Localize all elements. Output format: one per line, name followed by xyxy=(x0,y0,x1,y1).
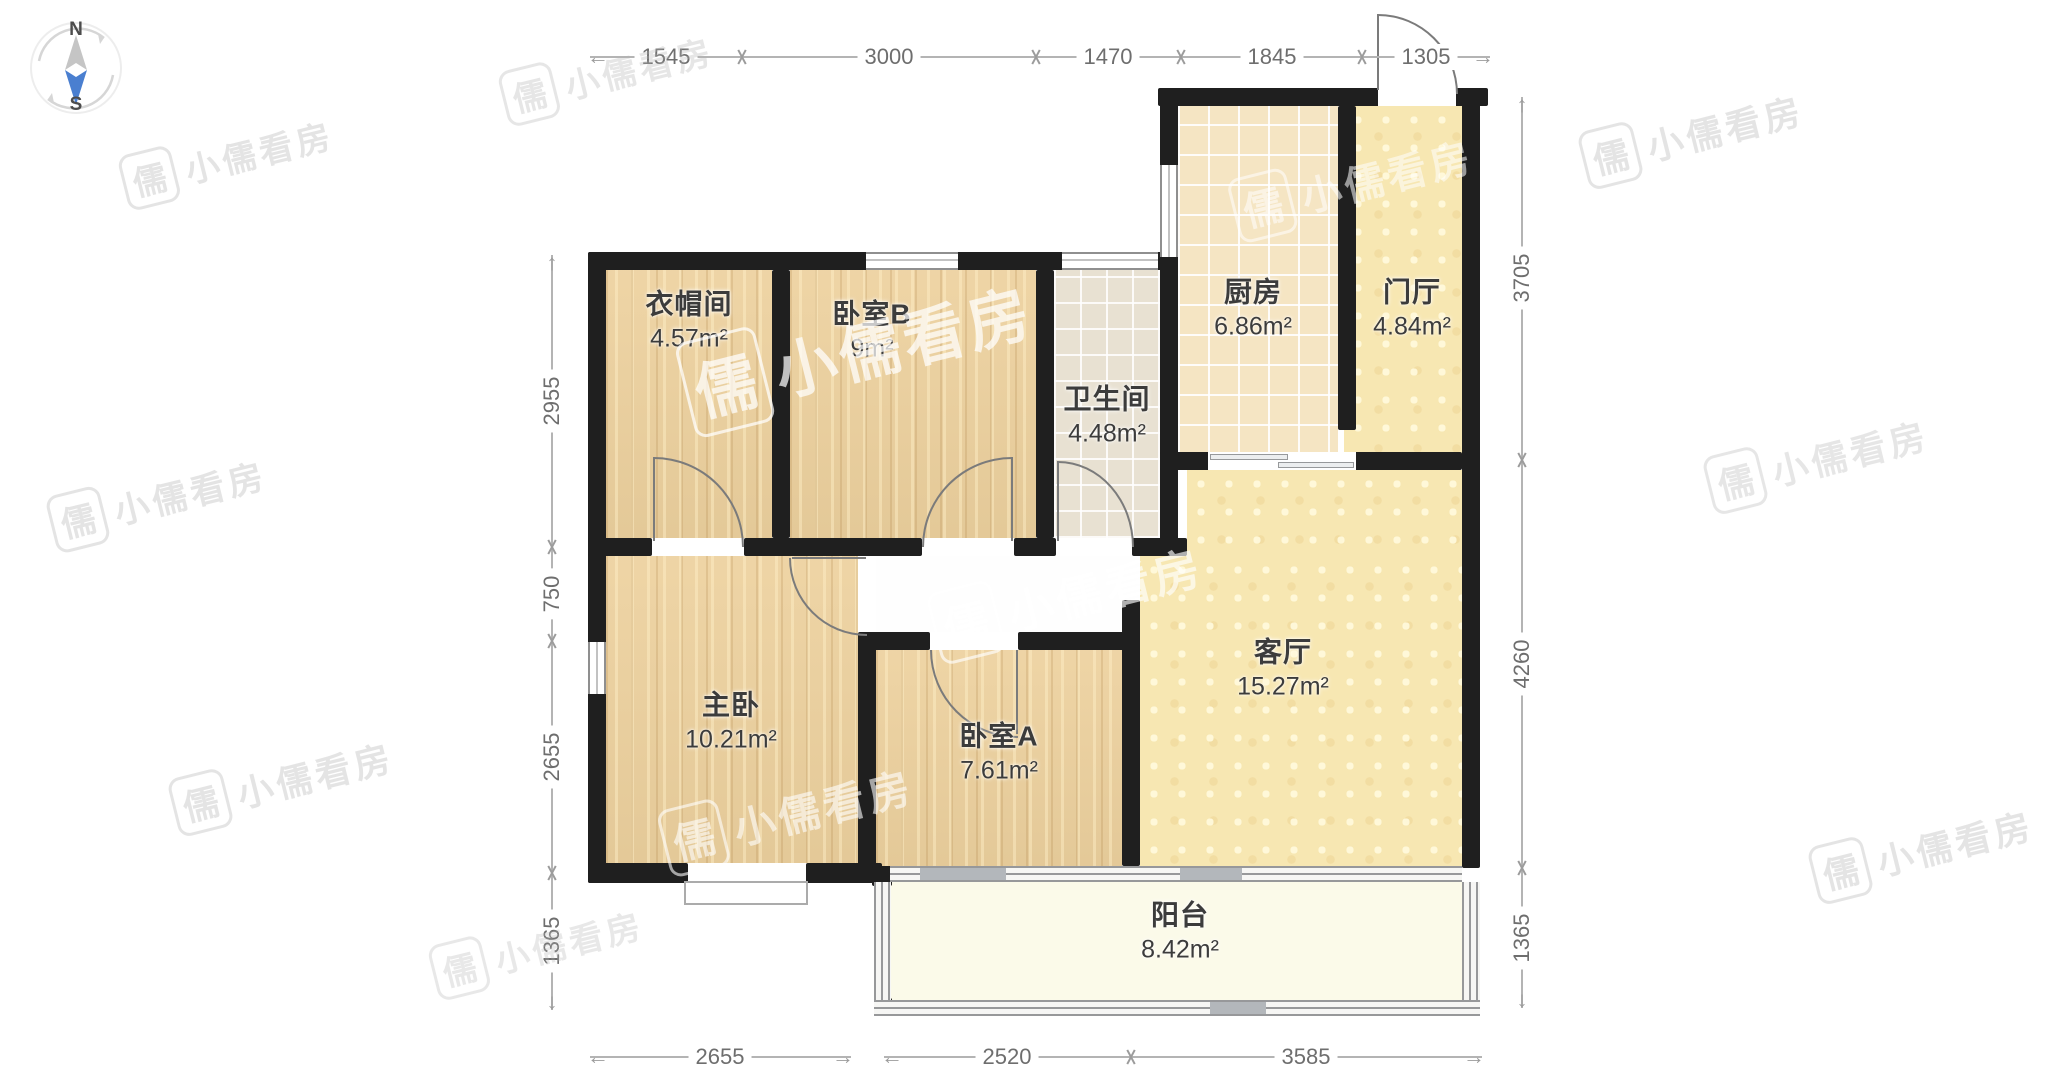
room-name: 衣帽间 xyxy=(645,283,732,323)
wall-master-bedrooma xyxy=(858,640,876,883)
room-area: 4.84m² xyxy=(1373,313,1451,342)
watermark-logo-icon: 儒 xyxy=(166,767,235,839)
dim-tick xyxy=(1352,47,1372,67)
compass: N S xyxy=(28,18,124,114)
master-door-leaf xyxy=(792,557,866,559)
room-label-bedroom-a: 卧室A 7.61m² xyxy=(959,715,1038,786)
watermark: 儒 小儒看房 xyxy=(116,105,339,213)
dim-label: 2655 xyxy=(539,726,565,789)
dim-tick xyxy=(1512,450,1532,470)
wall-kitchen-entry xyxy=(1338,106,1356,430)
dim-tick xyxy=(1026,47,1046,67)
watermark-logo-icon: 儒 xyxy=(1576,120,1645,192)
room-name: 卧室A xyxy=(959,715,1038,755)
balcony-window-left xyxy=(874,882,891,1000)
dim-label: 750 xyxy=(539,569,565,620)
watermark: 儒 小儒看房 xyxy=(1701,404,1935,517)
room-area: 4.48m² xyxy=(1063,420,1150,449)
wall-bedrooma-top xyxy=(858,632,930,650)
watermark: 儒 小儒看房 xyxy=(426,895,649,1003)
watermark: 儒 小儒看房 xyxy=(1806,794,2040,907)
dim-arrow: → xyxy=(1472,46,1494,68)
kitchen-sliding-door xyxy=(1208,452,1356,470)
hallway-floor xyxy=(876,556,1140,632)
dim-tick xyxy=(542,863,562,883)
balcony-door-sash xyxy=(920,868,1006,880)
dim-label: 3705 xyxy=(1509,247,1535,310)
wall-right-outer xyxy=(1462,88,1480,868)
room-label-balcony: 阳台 8.42m² xyxy=(1141,894,1219,965)
room-area: 9m² xyxy=(832,335,911,364)
room-label-master: 主卧 10.21m² xyxy=(685,684,777,755)
wall-master-bottom xyxy=(588,863,688,883)
watermark-logo-icon: 儒 xyxy=(44,484,112,555)
dim-label: 1545 xyxy=(635,44,698,70)
wall-mid xyxy=(744,538,922,556)
dim-tick xyxy=(732,47,752,67)
watermark-logo-icon: 儒 xyxy=(496,60,562,128)
compass-north-label: N xyxy=(69,19,83,41)
master-window xyxy=(588,642,606,694)
room-name: 客厅 xyxy=(1237,631,1329,671)
dim-label: 4260 xyxy=(1509,633,1535,696)
room-name: 厨房 xyxy=(1214,271,1292,311)
dim-label: 2520 xyxy=(976,1044,1039,1070)
room-label-cloakroom: 衣帽间 4.57m² xyxy=(645,283,732,354)
room-name: 阳台 xyxy=(1141,894,1219,934)
watermark-text: 小儒看房 xyxy=(179,109,338,193)
bay-window xyxy=(684,881,808,905)
watermark-text: 小儒看房 xyxy=(231,729,399,818)
dim-label: 3000 xyxy=(858,44,921,70)
room-area: 8.42m² xyxy=(1141,936,1219,965)
wall-mid xyxy=(1132,538,1187,556)
watermark-logo-icon: 儒 xyxy=(1701,445,1770,517)
dim-label: 1365 xyxy=(539,910,565,973)
bathroom-door-leaf xyxy=(1057,461,1059,541)
floorplan-canvas: 衣帽间 4.57m² 卧室B 9m² 卫生间 4.48m² 厨房 6.86m² … xyxy=(0,0,2070,1088)
bedroom-b-window xyxy=(866,252,958,270)
room-name: 卫生间 xyxy=(1063,378,1150,418)
room-label-entry: 门厅 4.84m² xyxy=(1373,271,1451,342)
wall-mid xyxy=(588,538,652,556)
room-label-bathroom: 卫生间 4.48m² xyxy=(1063,378,1150,449)
room-area: 7.61m² xyxy=(959,757,1038,786)
sliding-door-leaf xyxy=(1278,462,1354,468)
entrance-door-leaf xyxy=(1377,14,1379,90)
watermark: 儒 小儒看房 xyxy=(166,726,400,839)
wall-bedroomb-bath xyxy=(1036,270,1054,538)
living-floor xyxy=(1140,556,1462,866)
room-name: 门厅 xyxy=(1373,271,1451,311)
balcony-door-sash xyxy=(1180,868,1242,880)
watermark: 儒 小儒看房 xyxy=(1576,79,1810,192)
dim-arrow: ↓ xyxy=(547,991,558,1013)
dim-tick xyxy=(1121,1047,1141,1067)
wall-bedrooma-living xyxy=(1122,600,1140,866)
dim-arrow: ↑ xyxy=(547,252,558,274)
watermark-text: 小儒看房 xyxy=(1641,82,1809,171)
wall-left-outer xyxy=(588,252,606,883)
dim-arrow: ↓ xyxy=(1517,989,1528,1011)
sliding-door-leaf xyxy=(1210,454,1288,460)
dim-label: 2655 xyxy=(689,1044,752,1070)
watermark-text: 小儒看房 xyxy=(489,899,648,983)
watermark-text: 小儒看房 xyxy=(1871,797,2039,886)
room-name: 主卧 xyxy=(685,684,777,724)
watermark: 儒 小儒看房 xyxy=(496,21,719,129)
room-label-kitchen: 厨房 6.86m² xyxy=(1214,271,1292,342)
dim-tick xyxy=(542,537,562,557)
compass-south-label: S xyxy=(70,94,83,116)
dim-label: 1365 xyxy=(1509,907,1535,970)
dim-line-bottom-right xyxy=(884,1056,1482,1058)
wall-cloak-bedroomb xyxy=(772,270,790,538)
dim-label: 1470 xyxy=(1077,44,1140,70)
bedroom-b-door-leaf xyxy=(1011,457,1013,541)
cloakroom-door-leaf xyxy=(653,457,655,541)
dim-arrow: → xyxy=(832,1046,854,1068)
balcony-window-bottom xyxy=(874,1000,1480,1016)
dim-label: 3585 xyxy=(1275,1044,1338,1070)
watermark-logo-icon: 儒 xyxy=(116,144,182,212)
room-name: 卧室B xyxy=(832,293,911,333)
balcony-window-sash xyxy=(1210,1002,1266,1014)
dim-label: 1305 xyxy=(1395,44,1458,70)
dim-label: 1845 xyxy=(1241,44,1304,70)
dim-tick xyxy=(1171,47,1191,67)
dim-arrow: ← xyxy=(587,1046,609,1068)
watermark-text: 小儒看房 xyxy=(1766,407,1934,496)
watermark-text: 小儒看房 xyxy=(108,448,272,535)
dim-arrow: ← xyxy=(881,1046,903,1068)
wall-mid xyxy=(1014,538,1056,556)
watermark: 儒 小儒看房 xyxy=(44,444,273,555)
room-label-living: 客厅 15.27m² xyxy=(1237,631,1329,702)
dim-arrow: → xyxy=(1463,1046,1485,1068)
dim-arrow: ↑ xyxy=(1517,94,1528,116)
kitchen-window xyxy=(1160,165,1178,257)
dim-tick xyxy=(1512,858,1532,878)
bathroom-window xyxy=(1062,252,1158,270)
living-floor-upper xyxy=(1187,470,1462,560)
room-area: 4.57m² xyxy=(645,325,732,354)
room-area: 10.21m² xyxy=(685,726,777,755)
balcony-window-right xyxy=(1462,882,1480,1000)
wall-master-bottom xyxy=(806,863,882,883)
room-area: 15.27m² xyxy=(1237,673,1329,702)
dim-tick xyxy=(542,631,562,651)
dim-arrow: ← xyxy=(587,46,609,68)
watermark-logo-icon: 儒 xyxy=(1806,835,1875,907)
room-label-bedroom-b: 卧室B 9m² xyxy=(832,293,911,364)
dim-label: 2955 xyxy=(539,370,565,433)
bay-window-gap xyxy=(688,863,806,883)
room-area: 6.86m² xyxy=(1214,313,1292,342)
watermark-logo-icon: 儒 xyxy=(426,934,492,1002)
